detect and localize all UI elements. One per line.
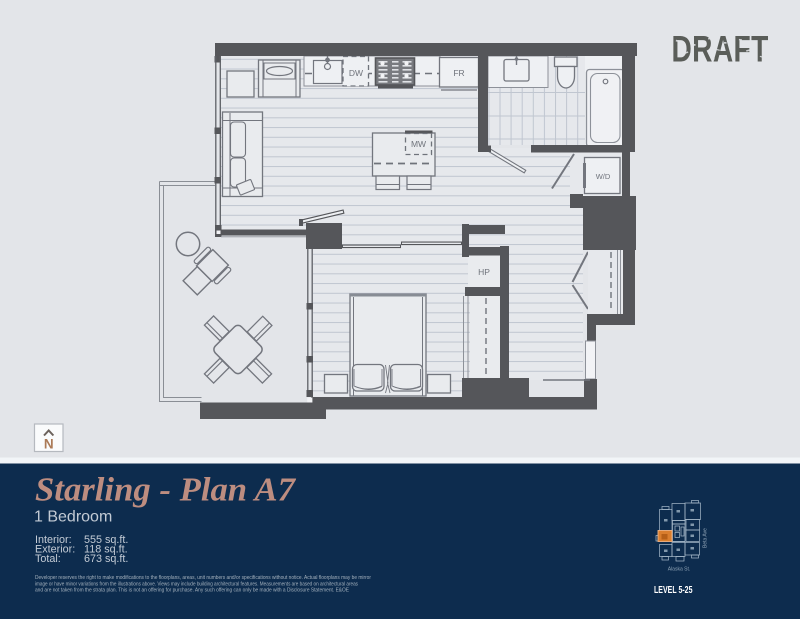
svg-text:DRAFT: DRAFT [672, 28, 769, 70]
svg-text:Total:: Total: [35, 553, 61, 565]
svg-text:HP: HP [478, 267, 490, 277]
svg-text:Starling - Plan A7: Starling - Plan A7 [35, 472, 296, 509]
svg-text:Developer reserves the right t: Developer reserves the right to make mod… [35, 575, 371, 581]
svg-text:and are not taken from the str: and are not taken from the strata plan. … [35, 588, 349, 594]
svg-text:FR: FR [453, 68, 464, 78]
svg-text:W/D: W/D [596, 172, 611, 181]
svg-text:LEVEL 5-25: LEVEL 5-25 [654, 585, 693, 596]
svg-text:1 Bedroom: 1 Bedroom [34, 509, 112, 526]
svg-text:Beta Ave: Beta Ave [703, 528, 709, 548]
svg-text:image or have minor variations: image or have minor variations from the … [35, 581, 358, 587]
svg-text:DW: DW [349, 68, 363, 78]
svg-text:MW: MW [411, 139, 426, 149]
svg-text:N: N [44, 437, 54, 452]
svg-text:673 sq.ft.: 673 sq.ft. [84, 553, 128, 565]
svg-text:Alaska St.: Alaska St. [668, 567, 691, 573]
